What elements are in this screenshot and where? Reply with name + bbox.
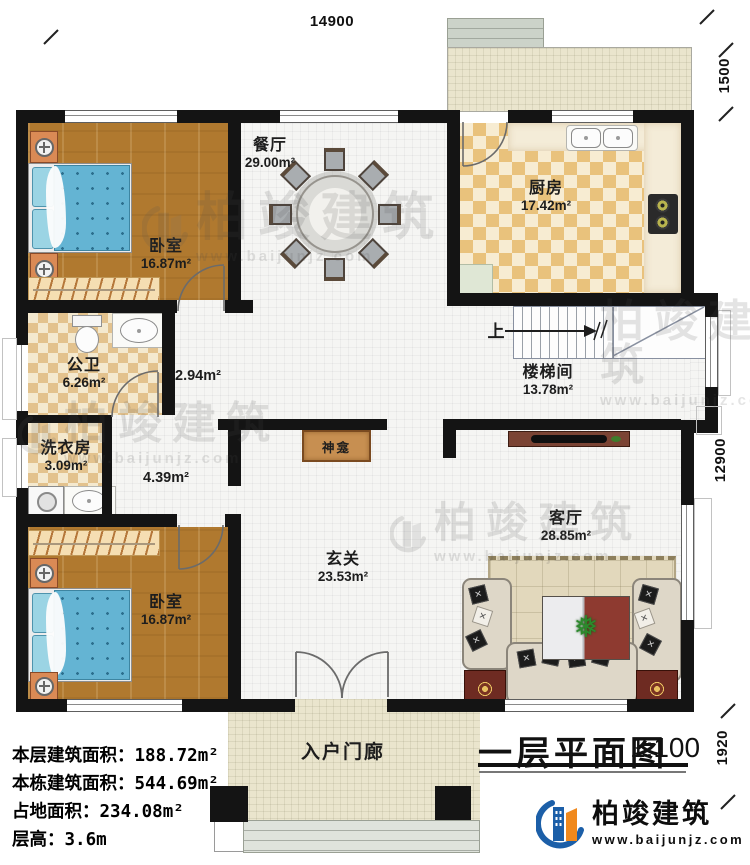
stair-up-label: 上: [488, 317, 505, 342]
room-area: 17.42m²: [521, 198, 571, 213]
wall-segment: [398, 110, 448, 123]
room-label-kitchen: 厨房 17.42m²: [521, 180, 571, 213]
wall-segment: [508, 110, 552, 123]
wall-segment: [16, 300, 177, 313]
room-name: 玄关: [318, 551, 368, 569]
title-underline: [479, 771, 686, 773]
tv-console: [508, 431, 630, 447]
room-name: 卧室: [141, 594, 191, 612]
room-area: 28.85m²: [541, 528, 591, 543]
nightstand: [30, 672, 58, 700]
window: [681, 505, 694, 620]
dining-chair: [324, 258, 345, 281]
kitchen-mat: [459, 264, 493, 296]
room-area: 6.26m²: [63, 375, 106, 390]
stat-row: 本层建筑面积：188.72m²: [12, 742, 219, 770]
window: [705, 317, 718, 387]
wall-segment: [387, 699, 505, 712]
hall-area-label: 4.39m²: [143, 470, 189, 486]
sofa-pillow: [517, 649, 537, 669]
stat-value: 544.69m²: [135, 774, 219, 794]
room-name: 厨房: [521, 180, 571, 198]
bathroom-sink: [120, 318, 158, 343]
wall-segment: [16, 514, 177, 527]
wall-segment: [225, 300, 253, 313]
room-label-foyer: 玄关 23.53m²: [318, 551, 368, 584]
dimension-terrace-depth: 1500: [716, 58, 733, 93]
room-name: 卧室: [141, 238, 191, 256]
porch-column-base: [214, 818, 246, 852]
laundry-sink: [72, 490, 106, 512]
window-sill: [694, 498, 712, 629]
brand-glyph-icon: [536, 797, 584, 851]
window: [505, 699, 627, 712]
hall-area-label: 2.94m²: [175, 368, 221, 384]
wall-segment: [443, 430, 456, 458]
wall-segment: [228, 428, 241, 486]
room-area: 16.87m²: [141, 256, 191, 271]
wall-segment: [16, 699, 67, 712]
area-stats: 本层建筑面积：188.72m² 本栋建筑面积：544.69m² 占地面积：234…: [12, 742, 219, 854]
stair-landing: [613, 306, 707, 359]
room-label-bedroom-tl: 卧室 16.87m²: [141, 238, 191, 271]
stat-row: 本栋建筑面积：544.69m²: [12, 770, 219, 798]
room-label-bedroom-bl: 卧室 16.87m²: [141, 594, 191, 627]
room-label-laundry: 洗衣房 3.09m²: [40, 440, 91, 473]
wall-segment: [16, 415, 106, 423]
stat-label: 层高：: [12, 829, 65, 849]
wall-segment: [443, 419, 681, 430]
wardrobe: [28, 530, 160, 556]
room-name: 公卫: [63, 357, 106, 375]
stove: [648, 194, 678, 234]
window: [552, 110, 633, 123]
room-area: 3.09m²: [40, 458, 91, 473]
wall-segment: [681, 620, 694, 712]
room-name: 入户门廊: [301, 742, 385, 763]
dimension-top-width: 14900: [310, 13, 354, 30]
kitchen-sink-basin: [603, 128, 633, 148]
drawing-scale: 1:100: [630, 732, 700, 764]
dining-chair: [269, 204, 292, 225]
wall-segment: [228, 110, 241, 313]
room-area: 13.78m²: [522, 382, 573, 397]
window-sill: [696, 406, 722, 435]
terrace-steps: [447, 18, 544, 49]
stat-label: 本栋建筑面积：: [12, 773, 135, 793]
room-label-dining: 餐厅 29.00m²: [245, 137, 295, 170]
brand-logo: 柏竣建筑 www.baijunjz.com: [536, 797, 744, 851]
shrine-cabinet: 神龛: [302, 430, 371, 462]
stat-label: 占地面积：: [12, 801, 100, 821]
window: [280, 110, 398, 123]
room-area: 16.87m²: [141, 612, 191, 627]
window-sill: [2, 438, 17, 497]
brand-name: 柏竣建筑: [592, 801, 744, 828]
room-name: 餐厅: [245, 137, 295, 155]
room-name: 楼梯间: [522, 364, 573, 382]
porch-column: [435, 786, 471, 820]
wall-segment: [218, 419, 387, 430]
room-area: 23.53m²: [318, 569, 368, 584]
kitchen-sink-basin: [571, 128, 601, 148]
room-name: 洗衣房: [40, 440, 91, 458]
window: [65, 110, 177, 123]
brand-url: www.baijunjz.com: [592, 832, 744, 847]
washing-machine: [28, 486, 64, 515]
wall-segment: [102, 415, 112, 514]
dimension-porch-depth: 1920: [714, 730, 731, 765]
room-label-stairwell: 楼梯间 13.78m²: [522, 364, 573, 397]
wall-segment: [225, 514, 241, 527]
wardrobe: [28, 277, 160, 302]
room-area: 29.00m²: [245, 155, 295, 170]
wall-segment: [681, 110, 694, 306]
wall-segment: [681, 433, 694, 505]
window-sill: [718, 310, 731, 396]
wall-segment: [182, 699, 295, 712]
window: [67, 699, 182, 712]
terrace: [447, 47, 692, 112]
title-underline: [478, 763, 688, 767]
wall-segment: [447, 110, 460, 306]
stat-value: 234.08m²: [100, 802, 184, 822]
wall-segment: [162, 313, 175, 415]
room-label-bathroom: 公卫 6.26m²: [63, 357, 106, 390]
stat-row: 层高：3.6m: [12, 826, 219, 854]
room-label-living: 客厅 28.85m²: [541, 510, 591, 543]
room-name: 客厅: [541, 510, 591, 528]
window: [16, 345, 28, 411]
stat-row: 占地面积：234.08m²: [12, 798, 219, 826]
dimension-building-depth: 12900: [712, 438, 729, 482]
wall-segment: [447, 293, 718, 306]
toilet: [75, 326, 99, 353]
nightstand: [30, 131, 58, 163]
coffee-table: [542, 596, 630, 660]
stair-treads: [513, 306, 615, 359]
window: [16, 445, 28, 488]
porch-steps: [243, 820, 480, 853]
stat-value: 188.72m²: [135, 746, 219, 766]
wall-segment: [705, 293, 718, 317]
stat-value: 3.6m: [65, 830, 107, 850]
dining-chair: [324, 148, 345, 171]
stat-label: 本层建筑面积：: [12, 745, 135, 765]
wall-segment: [228, 527, 241, 699]
room-label-porch: 入户门廊: [301, 742, 385, 763]
nightstand: [30, 558, 58, 588]
window-sill: [2, 338, 17, 420]
dining-table: [296, 175, 374, 253]
dining-chair: [378, 204, 401, 225]
floor-plan-canvas: 神龛: [0, 0, 750, 865]
